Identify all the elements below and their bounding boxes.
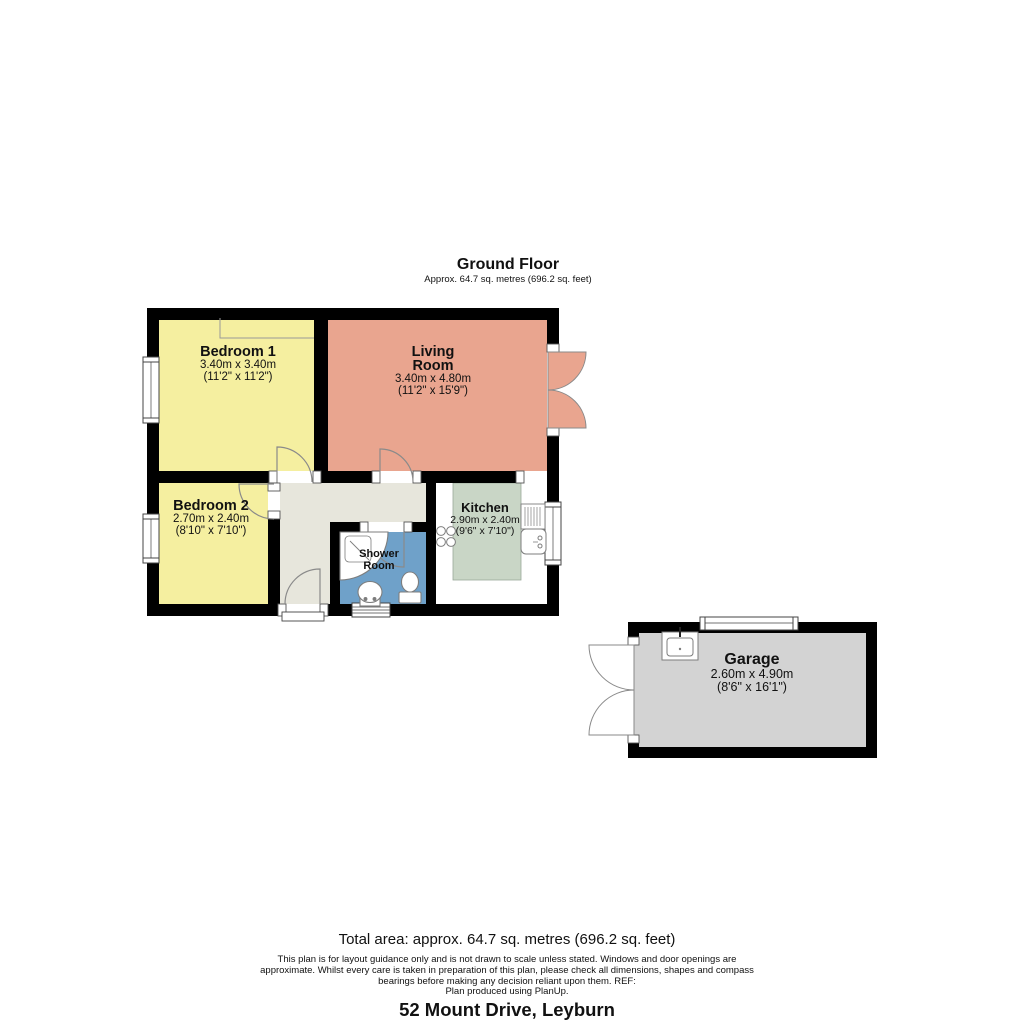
bedroom1-living-wall (314, 318, 328, 471)
garage-door-leaf-bottom (589, 690, 634, 735)
garage-sink-drain (679, 648, 681, 650)
disclaimer-line: Plan produced using PlanUp. (260, 987, 754, 998)
plan-subtitle: Approx. 64.7 sq. metres (696.2 sq. feet) (424, 275, 591, 285)
jamb (404, 522, 412, 532)
divider-wall (147, 471, 559, 483)
french-door-leaf-top (548, 352, 586, 390)
jamb (628, 637, 639, 645)
plan-title: Ground Floor (457, 256, 559, 274)
shower-room-label: Shower Room (356, 549, 402, 572)
shower-left-wall (330, 532, 340, 604)
room-dim-metric: 2.70m x 2.40m (173, 513, 249, 525)
room-dim-imperial: (9'6" x 7'10") (450, 526, 519, 537)
jamb (516, 471, 524, 483)
toilet-bowl (402, 572, 419, 592)
kitchen-window (545, 502, 561, 565)
kitchen-doorway-opening (524, 471, 547, 483)
french-doors (548, 352, 586, 428)
jamb (372, 471, 380, 483)
room-dim-imperial: (8'6" x 16'1") (711, 681, 794, 694)
garage-label: Garage 2.60m x 4.90m (8'6" x 16'1") (711, 652, 794, 694)
room-dim-imperial: (8'10" x 7'10") (173, 525, 249, 537)
bedroom2-window (143, 514, 159, 563)
kitchen-sink (521, 529, 546, 554)
disclaimer-line: approximate. Whilst every care is taken … (260, 966, 754, 977)
total-area-text: Total area: approx. 64.7 sq. metres (696… (339, 932, 676, 949)
room-dim-imperial: (11'2" x 15'9") (395, 385, 471, 397)
shower-door-opening (368, 522, 404, 532)
wash-basin (358, 582, 382, 603)
hallway-floor-lower (280, 483, 330, 604)
living-door-opening (380, 471, 413, 483)
room-name: Shower Room (356, 549, 402, 572)
hob-burner (437, 527, 446, 536)
property-address: 52 Mount Drive, Leyburn (399, 1000, 615, 1020)
room-dim-imperial: (11'2" x 11'2") (200, 371, 276, 383)
garage-sink-bowl (667, 638, 693, 656)
garage-doors (589, 645, 634, 735)
basin-tap (373, 598, 376, 601)
toilet-cistern (399, 592, 421, 603)
garage-wall-bottom (628, 747, 877, 758)
kitchen-label: Kitchen 2.90m x 2.40m (9'6" x 7'10") (450, 501, 519, 537)
jamb (547, 428, 559, 436)
hob-burner (447, 538, 456, 547)
garage-window (700, 617, 798, 630)
house-wall-left (147, 308, 159, 616)
room-dim-metric: 3.40m x 3.40m (200, 359, 276, 371)
basin-tap (364, 598, 367, 601)
living-room-label: Living Room 3.40m x 4.80m (11'2" x 15'9"… (395, 345, 471, 397)
front-door-threshold (282, 612, 324, 621)
sink-tap (538, 544, 542, 548)
room-name: Bedroom 1 (200, 345, 276, 359)
disclaimer-block: This plan is for layout guidance only an… (260, 955, 754, 998)
jamb (628, 735, 639, 743)
bedroom1-label: Bedroom 1 3.40m x 3.40m (11'2" x 11'2") (200, 345, 276, 383)
garage-wall-right (866, 622, 877, 758)
room-name: Garage (711, 652, 794, 668)
bedroom2-hall-wall (268, 519, 280, 604)
jamb (360, 522, 368, 532)
room-name: Living Room (401, 345, 465, 373)
room-name: Kitchen (450, 501, 519, 515)
hob-burner (437, 538, 446, 547)
bedroom2-label: Bedroom 2 2.70m x 2.40m (8'10" x 7'10") (173, 499, 249, 537)
bedroom1-window (143, 357, 159, 423)
bedroom1-door-opening (277, 471, 313, 483)
room-dim-metric: 3.40m x 4.80m (395, 373, 471, 385)
house-wall-top (147, 308, 559, 320)
jamb (268, 511, 280, 519)
sink-tap (538, 536, 542, 540)
hall-kitchen-wall (426, 483, 436, 604)
jamb (413, 471, 421, 483)
bedroom1-floor (159, 320, 314, 471)
jamb (313, 471, 321, 483)
jamb (547, 344, 559, 352)
jamb (269, 471, 277, 483)
room-name: Bedroom 2 (173, 499, 249, 513)
garage-door-leaf-top (589, 645, 634, 690)
floorplan-page: Ground Floor Approx. 64.7 sq. metres (69… (0, 0, 1024, 1024)
sink-drainer (521, 504, 545, 529)
french-door-leaf-bottom (548, 390, 586, 428)
